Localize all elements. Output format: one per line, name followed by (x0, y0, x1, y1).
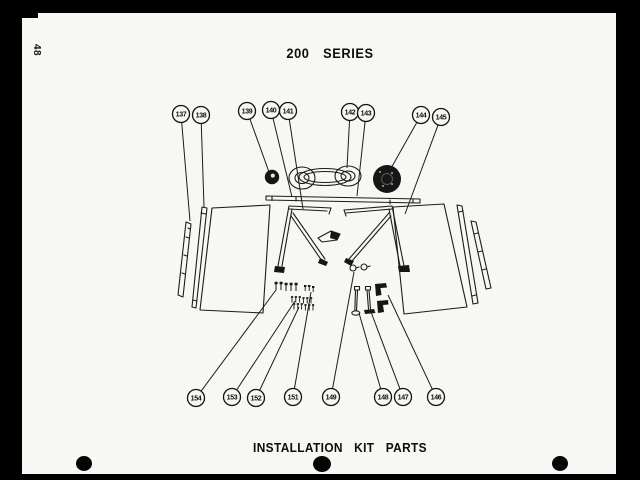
registration-dot-left (76, 456, 92, 471)
svg-text:143: 143 (361, 111, 372, 118)
registration-dot-center (313, 456, 331, 472)
callout-layer: 1371381391401411421431441451461471481491… (173, 102, 450, 407)
svg-text:140: 140 (266, 108, 277, 115)
right-filler-panel (393, 204, 467, 314)
grommet (265, 170, 279, 184)
callout-138: 138 (193, 107, 210, 208)
callout-144: 144 (390, 107, 430, 171)
top-rail (266, 196, 420, 204)
svg-text:139: 139 (242, 109, 253, 116)
svg-text:142: 142 (345, 110, 356, 117)
screw-row (275, 283, 298, 291)
right-inner-rail (457, 205, 478, 304)
svg-text:149: 149 (326, 395, 337, 402)
mounting-bolt-right (364, 287, 376, 315)
svg-text:152: 152 (251, 396, 262, 403)
callout-142: 142 (342, 104, 359, 169)
svg-text:153: 153 (227, 395, 238, 402)
left-support-frame (274, 206, 331, 273)
svg-text:137: 137 (176, 112, 187, 119)
angle-brackets (375, 283, 389, 313)
callout-149: 149 (323, 272, 355, 406)
callout-143: 143 (357, 105, 375, 197)
footer-caption: INSTALLATION KIT PARTS (55, 441, 625, 455)
svg-text:146: 146 (431, 395, 442, 402)
svg-text:141: 141 (283, 109, 294, 116)
callout-148: 148 (359, 313, 392, 406)
left-filler-panel (200, 205, 270, 313)
screw-cluster-lower (293, 304, 314, 311)
svg-text:154: 154 (191, 396, 202, 403)
svg-text:148: 148 (378, 395, 389, 402)
svg-text:138: 138 (196, 113, 207, 120)
left-outer-rail (178, 222, 191, 297)
left-inner-rail (192, 207, 207, 308)
mounting-bolt-left (352, 287, 360, 316)
svg-text:147: 147 (398, 395, 409, 402)
svg-text:144: 144 (416, 113, 427, 120)
svg-text:151: 151 (288, 395, 299, 402)
right-support-frame (344, 206, 410, 272)
seal-roll (373, 165, 401, 193)
small-screws (304, 286, 314, 292)
svg-text:145: 145 (436, 115, 447, 122)
acorn-nuts (350, 264, 370, 271)
installation-kit-diagram: 1371381391401411421431441451461471481491… (0, 0, 640, 480)
center-clamp-clip (318, 231, 340, 242)
registration-dot-right (552, 456, 568, 471)
callout-137: 137 (173, 106, 191, 222)
callout-146: 146 (388, 295, 445, 406)
callout-145: 145 (405, 109, 450, 215)
